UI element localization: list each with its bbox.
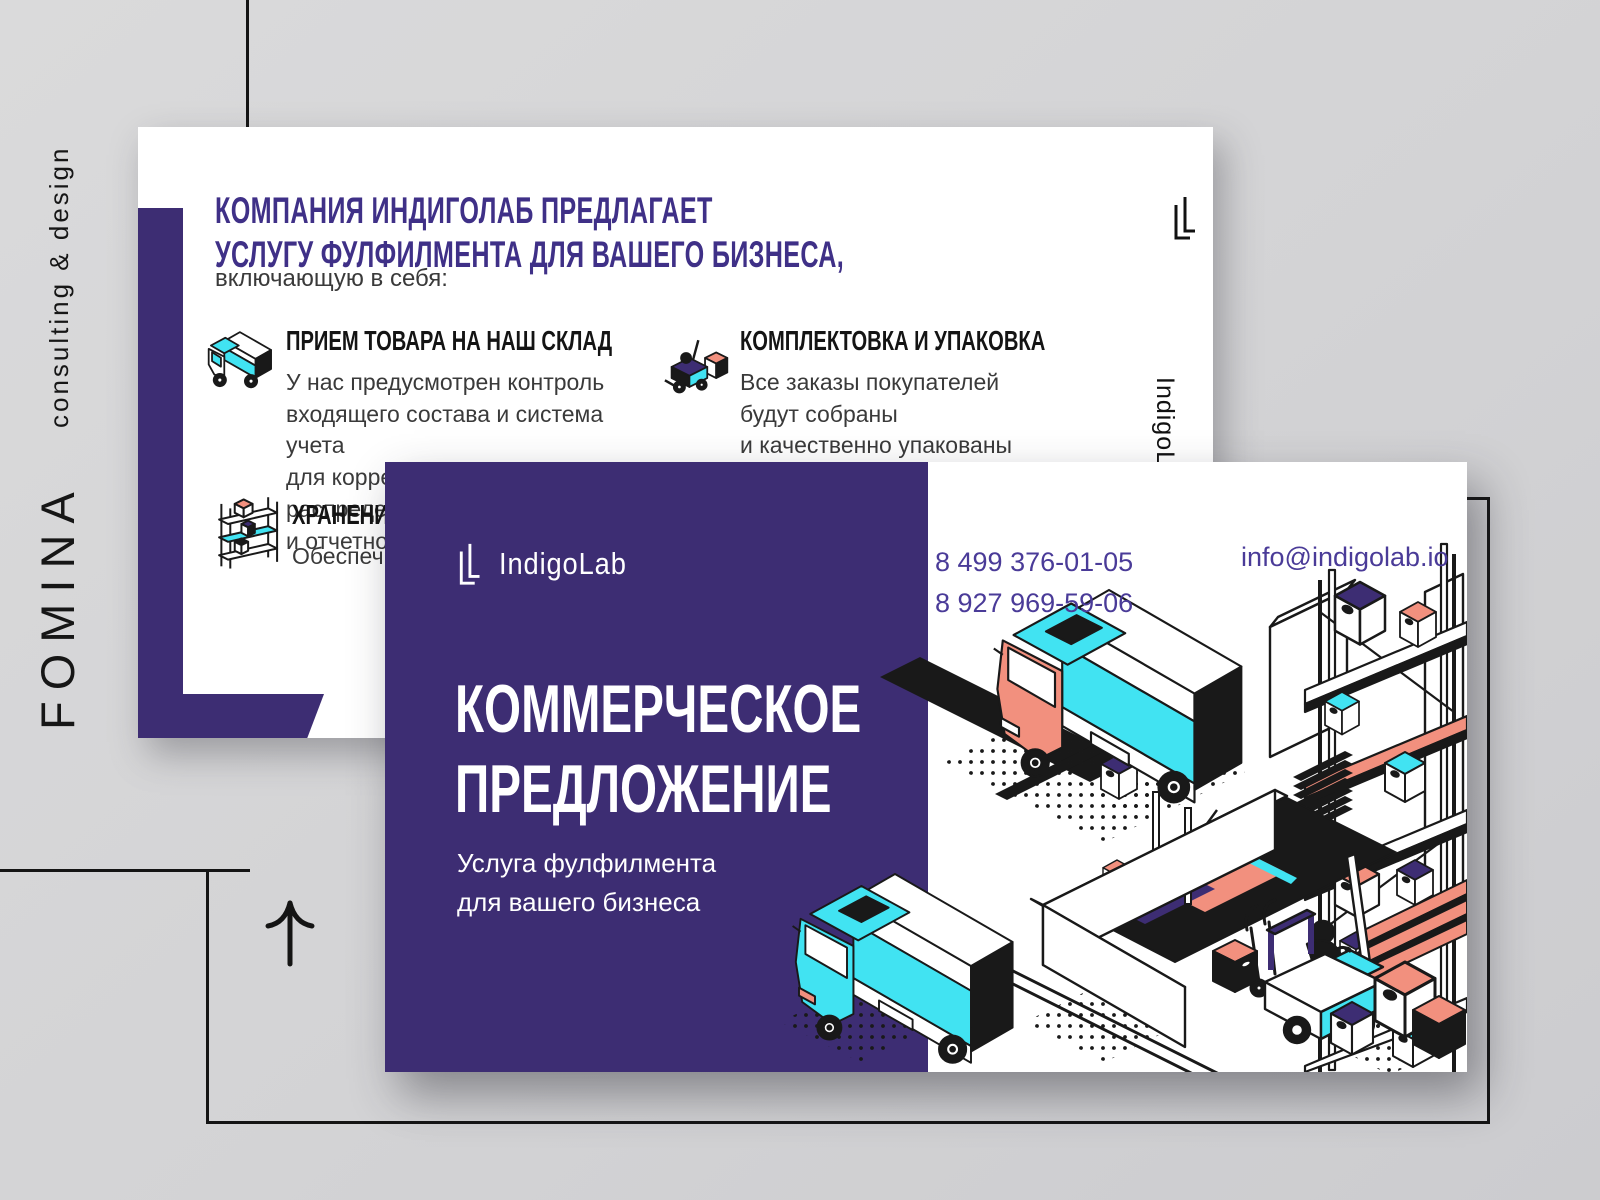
phone-number: 8 927 969-59-06 (935, 583, 1133, 624)
back-slide-subheading: включающую в себя: (215, 265, 448, 293)
delivery-truck-icon (202, 325, 280, 395)
logo: IndigoLab (451, 540, 644, 588)
back-slide-heading: КОМПАНИЯ ИНДИГОЛАБ ПРЕДЛАГАЕТ УСЛУГУ ФУЛ… (215, 189, 844, 276)
logo-monogram-icon (451, 540, 485, 588)
frame-line-left-vertical (206, 869, 209, 1124)
up-arrow-icon (258, 890, 322, 970)
purple-l-foot (138, 694, 324, 738)
studio-name: FOMINA (30, 430, 85, 730)
logo-monogram-icon (1170, 193, 1196, 243)
phone-number: 8 499 376-01-05 (935, 542, 1133, 583)
service-item-packing: КОМПЛЕКТОВКА И УПАКОВКА Все заказы покуп… (656, 325, 1076, 485)
studio-tagline: consulting & design (44, 128, 75, 428)
frame-line-top-vertical (246, 0, 249, 128)
purple-l-bar (138, 208, 183, 738)
proposal-subtitle: Услуга фулфилмента для вашего бизнеса (457, 844, 716, 922)
poster-canvas: consulting & design FOMINA КОМПАНИЯ ИНДИ… (0, 0, 1600, 1200)
contact-phones: 8 499 376-01-05 8 927 969-59-06 (935, 542, 1133, 623)
shelf-rack-icon (208, 495, 286, 573)
frame-line-left-horizontal (0, 869, 250, 872)
proposal-title: КОММЕРЧЕСКОЕ ПРЕДЛОЖЕНИЕ (455, 670, 861, 829)
front-slide: IndigoLab КОММЕРЧЕСКОЕ ПРЕДЛОЖЕНИЕ Услуг… (385, 462, 1467, 1072)
logo-text: IndigoLab (499, 546, 627, 582)
forklift-icon (656, 333, 734, 403)
contact-email: info@indigolab.io (1241, 542, 1449, 573)
frame-line-bottom (206, 1121, 1490, 1124)
service-item-title: КОМПЛЕКТОВКА И УПАКОВКА (740, 325, 985, 357)
frame-line-right-vertical (1487, 497, 1490, 1124)
service-item-body: Все заказы покупателей будут собраны и к… (740, 367, 1080, 462)
service-item-title: ПРИЕМ ТОВАРА НА НАШ СКЛАД (286, 325, 531, 357)
